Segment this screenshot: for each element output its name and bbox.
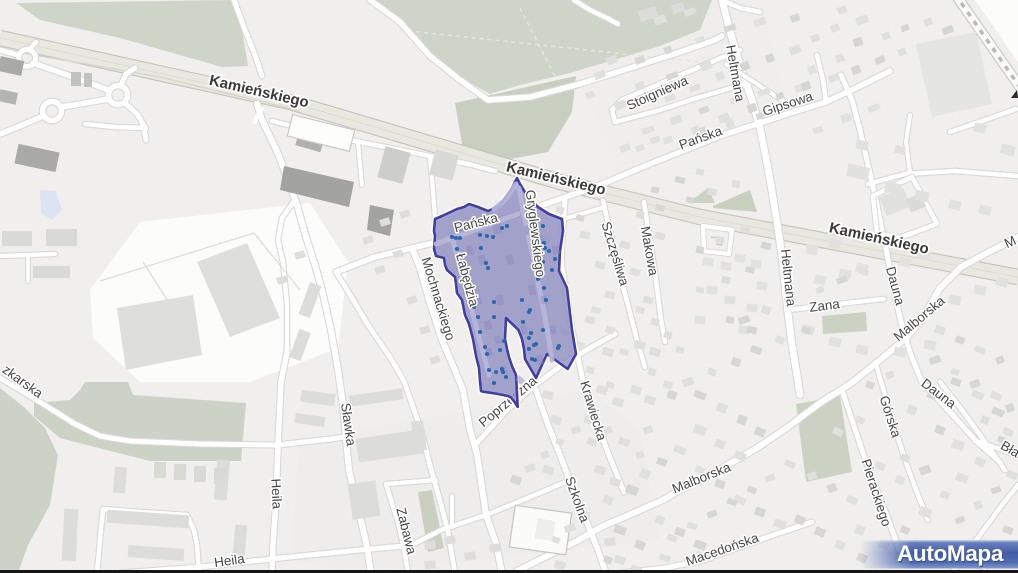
svg-text:AutoMapa: AutoMapa xyxy=(897,541,1004,566)
svg-text:Heila: Heila xyxy=(268,478,285,510)
